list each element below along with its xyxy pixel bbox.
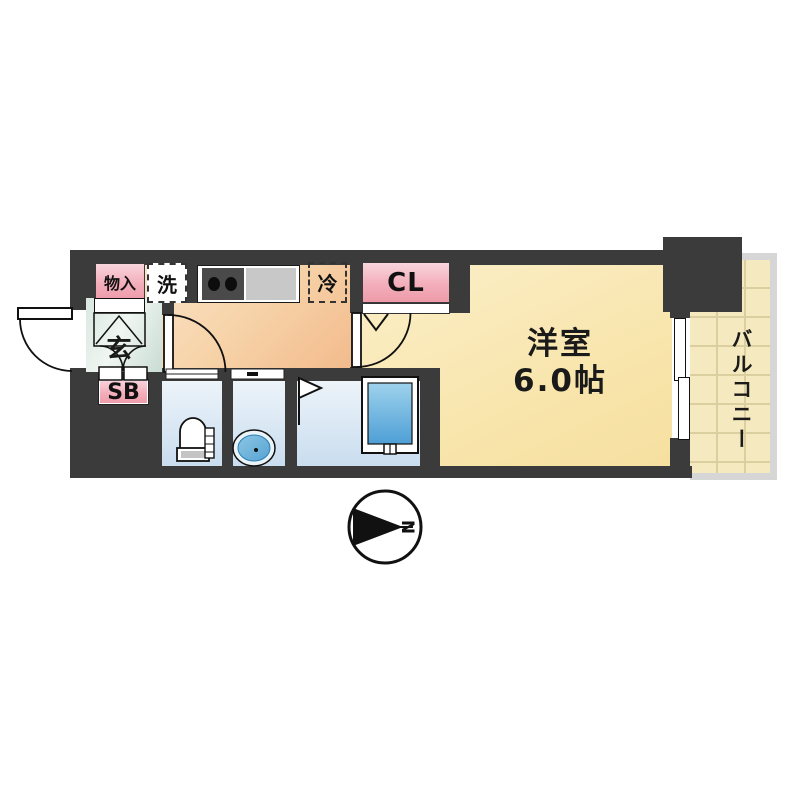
entrance-door-swing-arc bbox=[20, 319, 72, 371]
compass-north-label: N bbox=[397, 520, 417, 534]
entrance-label-text: 玄 bbox=[106, 334, 131, 363]
toilet-base-inner bbox=[181, 451, 205, 458]
balcony-label: バルコニー bbox=[726, 315, 756, 465]
toilet-control-panel bbox=[205, 428, 214, 458]
shoebox-door-leaf bbox=[99, 367, 122, 380]
balcony-label-text: バルコニー bbox=[729, 328, 753, 453]
washroom-door-handle bbox=[247, 372, 258, 376]
living-room-name: 洋室 bbox=[460, 326, 660, 363]
living-room-area: 6.0帖 bbox=[460, 363, 660, 400]
living-door-leaf bbox=[352, 313, 361, 367]
fixtures-layer: N bbox=[0, 0, 800, 800]
bathtub-icon bbox=[368, 383, 412, 444]
kitchen-door-leaf bbox=[164, 315, 173, 372]
floor-plan: 物入 洗 冷 CL SB bbox=[0, 0, 800, 800]
shoebox-door-leaf bbox=[124, 367, 147, 380]
kitchen-door-swing-arc bbox=[169, 315, 226, 372]
closet-fold-mark bbox=[364, 314, 388, 330]
bathroom-fold-door bbox=[299, 378, 321, 398]
entrance-label: 玄 bbox=[104, 329, 134, 365]
sink-basin bbox=[238, 435, 270, 461]
living-room-label: 洋室 6.0帖 bbox=[460, 326, 660, 400]
entrance-door-leaf bbox=[18, 308, 72, 319]
toilet-icon bbox=[180, 418, 206, 450]
sink-drain bbox=[254, 448, 258, 452]
